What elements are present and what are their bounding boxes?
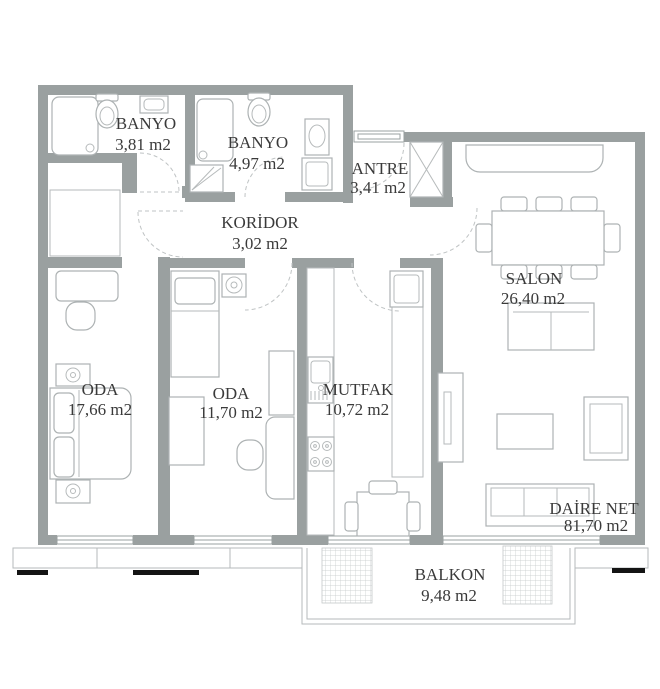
wall-koridor-bottom-a — [158, 258, 245, 268]
wall-top-right — [404, 132, 645, 142]
door-swing-oda-small — [245, 263, 292, 310]
dining-set — [476, 197, 620, 279]
chair-icon — [345, 502, 358, 531]
armchair-icon — [584, 397, 628, 460]
room-banyo-large: BANYO 4,97 m2 — [190, 93, 332, 192]
dining-chair-icon — [571, 265, 597, 279]
wall-bottom-2 — [133, 535, 194, 545]
room-label: BALKON — [415, 565, 486, 584]
wall-oda-mutfak-divider — [297, 258, 307, 535]
wall-koridor-top-a — [185, 192, 235, 202]
floor-plan: BANYO 3,81 m2 BANYO 4,97 m2 ANTRE 3,41 m… — [0, 0, 660, 689]
room-koridor: KORİDOR 3,02 m2 — [50, 190, 299, 256]
room-oda-small: ODA 11,70 m2 — [169, 271, 294, 499]
dining-chair-icon — [501, 197, 527, 211]
room-label: MUTFAK — [323, 380, 394, 399]
room-area: 3,81 m2 — [115, 135, 171, 154]
net-area-value: 81,70 m2 — [564, 516, 628, 535]
room-antre: ANTRE 3,41 m2 — [350, 159, 408, 197]
room-label: ANTRE — [352, 159, 409, 178]
railing-segment — [17, 570, 48, 575]
room-area: 9,48 m2 — [421, 586, 477, 605]
balcony-hatch — [322, 548, 372, 603]
floor-plan-page: BANYO 3,81 m2 BANYO 4,97 m2 ANTRE 3,41 m… — [0, 0, 660, 689]
balcony: BALKON 9,48 m2 — [13, 546, 648, 624]
pillow-icon — [175, 278, 215, 304]
chair-icon — [66, 302, 95, 330]
dining-chair-icon — [476, 224, 492, 252]
wall-oda-large-top — [38, 257, 122, 268]
wall-bottom-4 — [410, 535, 443, 545]
dining-chair-icon — [536, 197, 562, 211]
dining-table-icon — [492, 211, 604, 265]
room-label: BANYO — [116, 114, 176, 133]
wall-bottom-5 — [600, 535, 645, 545]
wall-bottom-3 — [272, 535, 328, 545]
wall-bottom-1 — [38, 535, 57, 545]
wall-left — [38, 85, 48, 545]
room-area: 26,40 m2 — [501, 289, 565, 308]
nightstand-icon — [56, 480, 90, 503]
railing-segment — [612, 568, 645, 573]
wall-right — [635, 132, 645, 545]
room-area: 17,66 m2 — [68, 400, 132, 419]
shaft — [410, 142, 443, 197]
chair-icon — [237, 440, 263, 470]
room-salon: SALON 26,40 m2 DAİRE NET 81,70 m2 — [438, 145, 639, 535]
chair-icon — [369, 481, 397, 494]
room-oda-large: ODA 17,66 m2 — [50, 271, 132, 503]
chair-icon — [407, 502, 420, 531]
wall-top-left — [38, 85, 353, 95]
room-label: ODA — [82, 380, 120, 399]
wall-oda-large-right — [158, 257, 170, 535]
door-swing-banyo-small — [140, 153, 179, 192]
room-banyo-small: BANYO 3,81 m2 — [52, 94, 176, 155]
room-label: ODA — [213, 384, 251, 403]
closet-icon — [50, 190, 120, 256]
wall-koridor-top-b — [285, 192, 353, 202]
console-icon — [466, 145, 603, 172]
shower-icon — [52, 97, 98, 155]
room-mutfak: MUTFAK 10,72 m2 — [307, 268, 423, 536]
room-label: SALON — [506, 269, 563, 288]
fridge-icon — [390, 271, 423, 307]
balcony-hatch — [503, 546, 552, 604]
door-swing-oda-large — [138, 212, 183, 257]
dining-chair-icon — [604, 224, 620, 252]
room-area: 4,97 m2 — [229, 154, 285, 173]
railing-segment — [133, 570, 199, 575]
room-label: BANYO — [228, 133, 288, 152]
entrance-door — [354, 131, 404, 142]
dining-chair-icon — [571, 197, 597, 211]
wall-antre-salon-jamb — [443, 142, 452, 207]
room-label: KORİDOR — [221, 213, 299, 232]
pillow-icon — [54, 437, 74, 477]
room-area: 3,02 m2 — [232, 234, 288, 253]
coffee-table-icon — [497, 414, 553, 449]
room-area: 10,72 m2 — [325, 400, 389, 419]
desk-icon — [56, 271, 118, 301]
desk-icon — [266, 417, 294, 499]
room-area: 3,41 m2 — [350, 178, 406, 197]
ledge-right — [575, 548, 648, 568]
wall-banyo-small-jog — [122, 153, 137, 193]
toilet-icon — [248, 98, 270, 126]
toilet-icon — [96, 100, 118, 128]
breakfast-table-icon — [357, 492, 409, 536]
door-swing-salon — [430, 208, 477, 255]
room-area: 11,70 m2 — [199, 403, 263, 422]
shelf-icon — [269, 351, 294, 415]
ledge-left — [13, 548, 302, 568]
